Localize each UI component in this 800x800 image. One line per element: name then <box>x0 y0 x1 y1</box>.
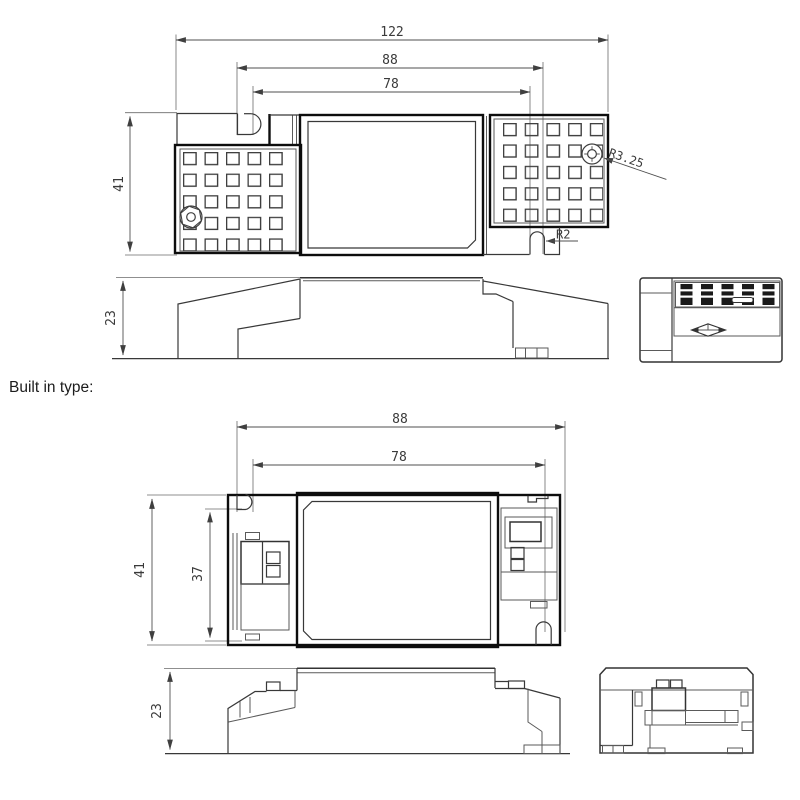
left-screw <box>180 206 202 228</box>
dim-bi-inner-height-label: 37 <box>191 566 206 582</box>
built-in-end-view <box>600 668 753 754</box>
notch-radius-label: R2 <box>556 228 570 242</box>
right-screw <box>582 144 602 164</box>
drawing-page: 122 88 78 41 23 <box>0 0 800 800</box>
dim-side-height-label: 23 <box>104 310 119 326</box>
section-label: Built in type: <box>9 379 93 396</box>
standard-type-drawing: 122 88 78 41 23 <box>104 25 782 362</box>
built-in-plan-view <box>228 493 560 647</box>
dim-bi-side-height-label: 23 <box>150 703 165 719</box>
dim-bi-mount-width-label: 88 <box>392 412 408 427</box>
standard-end-view <box>640 278 782 362</box>
left-vent-grid <box>182 151 286 251</box>
dim-overall-width-label: 122 <box>380 25 403 40</box>
right-vent-grid <box>502 122 603 222</box>
built-in-dimensions: 88 78 41 37 23 <box>133 412 565 750</box>
release-clip-symbol <box>692 324 726 336</box>
screw-radius-callout: R3.25 <box>603 145 671 183</box>
dim-mount-width-label: 88 <box>382 53 398 68</box>
screw-radius-label: R3.25 <box>607 146 646 171</box>
drawing-canvas: 122 88 78 41 23 <box>0 0 800 800</box>
dim-bi-inner-width-label: 78 <box>391 450 407 465</box>
notch-radius-callout: R2 <box>546 228 578 245</box>
terminal-block <box>681 284 775 305</box>
built-in-side-view <box>165 668 570 754</box>
built-in-type-drawing: 88 78 41 37 23 <box>133 412 753 754</box>
standard-side-view <box>112 278 609 359</box>
dim-inner-width-label: 78 <box>383 77 399 92</box>
dim-bi-height-label: 41 <box>133 562 148 578</box>
dim-height-label: 41 <box>112 176 127 192</box>
standard-plan-view: R3.25 R2 <box>175 114 671 256</box>
